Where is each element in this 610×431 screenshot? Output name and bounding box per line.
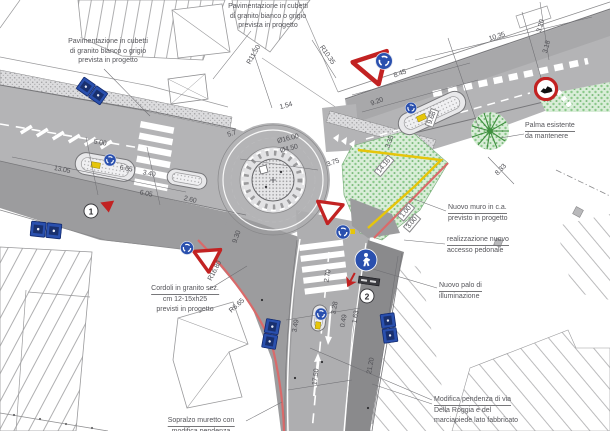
site-plan-drawing: Pavimentazione in cubettidi granito bian… bbox=[0, 0, 610, 431]
parking-signs-icon bbox=[75, 76, 109, 106]
annotation-line: di granito bianco o grigio bbox=[70, 47, 146, 57]
dimension-label: 5.00 bbox=[93, 138, 107, 147]
annotation-line: illuminazione bbox=[439, 292, 479, 302]
dimension-label: 10.35 bbox=[488, 31, 506, 43]
parking-signs-icon bbox=[261, 318, 282, 350]
annotation-line: cm 12-15xh25 bbox=[163, 295, 207, 305]
annotation-line: di granito bianco o grigio bbox=[230, 12, 306, 22]
dimension-label: 3.75 bbox=[326, 158, 340, 169]
annotation-line: Della Roggia e del bbox=[434, 406, 491, 416]
annotation-cordoli: Cordoli in granito sez.cm 12-15xh25previ… bbox=[151, 284, 219, 314]
dimension-label: 1.54 bbox=[279, 101, 293, 111]
dimension-label: R10.35 bbox=[318, 44, 336, 66]
roundabout-sign-icon bbox=[104, 154, 117, 167]
dimension-label: R11.50 bbox=[246, 44, 262, 66]
annotation-line: Pavimentazione in cubetti bbox=[228, 2, 308, 12]
dimension-label: 1.63 bbox=[351, 310, 360, 324]
annotation-line: Nuovo palo di bbox=[439, 281, 482, 292]
dimension-label: 3.18 bbox=[542, 40, 552, 54]
annotation-palma: Palma esistenteda mantenere bbox=[525, 121, 575, 142]
dimension-label: 0.49 bbox=[339, 314, 348, 328]
yield-marker-icon bbox=[99, 199, 117, 214]
dimension-label: 13.05 bbox=[53, 165, 71, 175]
dimension-label: 9.68 bbox=[425, 108, 440, 128]
roundabout-sign-icon bbox=[335, 224, 350, 239]
annotation-line: previsto in progetto bbox=[448, 214, 508, 224]
dimension-label: 2.70 bbox=[323, 269, 332, 283]
dimension-label: 3.20 bbox=[536, 19, 546, 33]
annotation-nuovo-muro: Nuovo muro in c.a.previsto in progetto bbox=[448, 203, 508, 224]
dimension-label: 17.50 bbox=[312, 368, 321, 385]
dimension-label: R6.65 bbox=[228, 297, 246, 314]
annotation-line: Sopralzo muretto con bbox=[168, 416, 235, 427]
dimension-label: 9.30 bbox=[232, 230, 243, 244]
annotation-line: modifica pendenza bbox=[172, 427, 231, 431]
annotation-palo-illuminazione: Nuovo palo diilluminazione bbox=[439, 281, 482, 302]
dimension-label: 14.16 bbox=[374, 155, 395, 177]
annotation-line: prevista in progetto bbox=[78, 56, 138, 66]
dimension-label: 2.60 bbox=[183, 195, 197, 205]
yield-sign-icon bbox=[313, 199, 345, 227]
dimension-label: 8.33 bbox=[494, 163, 508, 177]
dimension-label: 3.28 bbox=[330, 301, 339, 315]
dimension-label: Ø4.50 bbox=[279, 143, 298, 154]
annotation-line: Palma esistente bbox=[525, 121, 575, 132]
annotation-line: da mantenere bbox=[525, 132, 568, 142]
dimension-label: 3.49 bbox=[291, 319, 300, 333]
annotation-line: Cordoli in granito sez. bbox=[151, 284, 219, 295]
dimension-label: 3.35 bbox=[385, 135, 396, 149]
roundabout-sign-icon bbox=[405, 102, 417, 114]
roundabout-sign-icon bbox=[180, 241, 194, 255]
annotation-line: prevista in progetto bbox=[238, 21, 298, 31]
roundabout-sign-icon bbox=[315, 308, 328, 321]
dimension-label: 21.20 bbox=[366, 357, 376, 374]
annotation-line: realizzazione nuovo bbox=[447, 235, 509, 246]
street-name-plate-icon bbox=[358, 276, 381, 287]
dimension-label: 6.65 bbox=[119, 164, 133, 173]
labels-overlay: Pavimentazione in cubettidi granito bian… bbox=[0, 0, 610, 431]
yield-sign-icon bbox=[192, 247, 224, 275]
annotation-modifica-pendenza: Modifica pendenza di viaDella Roggia e d… bbox=[434, 395, 518, 425]
annotation-line: Nuovo muro in c.a. bbox=[448, 203, 507, 214]
annotation-line: previsti in progetto bbox=[156, 305, 213, 315]
no-transit-sign-icon bbox=[534, 77, 558, 101]
annotation-line: accesso pedonale bbox=[447, 246, 503, 256]
annotation-pavimentazione-sx: Pavimentazione in cubettidi granito bian… bbox=[68, 37, 148, 66]
dimension-label: 3.40 bbox=[142, 169, 156, 178]
parking-signs-icon bbox=[379, 312, 399, 344]
numbered-marker-1: 1 bbox=[84, 204, 99, 219]
annotation-pavimentazione-alto: Pavimentazione in cubettidi granito bian… bbox=[228, 2, 308, 31]
parking-signs-icon bbox=[29, 220, 62, 240]
numbered-marker-2: 2 bbox=[360, 289, 375, 304]
dimension-label: 5.7 bbox=[227, 129, 238, 138]
annotation-line: Modifica pendenza di via bbox=[434, 395, 511, 406]
annotation-sopralzo: Sopralzo muretto conmodifica pendenza bbox=[168, 416, 235, 431]
dimension-label: 9.20 bbox=[370, 97, 384, 108]
annotation-line: marciapiede lato fabbricato bbox=[434, 416, 518, 426]
annotation-accesso-pedonale: realizzazione nuovoaccesso pedonale bbox=[447, 235, 509, 256]
pedestrian-crossing-sign-icon bbox=[354, 248, 377, 271]
roundabout-sign-icon bbox=[375, 52, 393, 70]
dimension-label: 6.05 bbox=[139, 189, 153, 198]
annotation-line: Pavimentazione in cubetti bbox=[68, 37, 148, 47]
